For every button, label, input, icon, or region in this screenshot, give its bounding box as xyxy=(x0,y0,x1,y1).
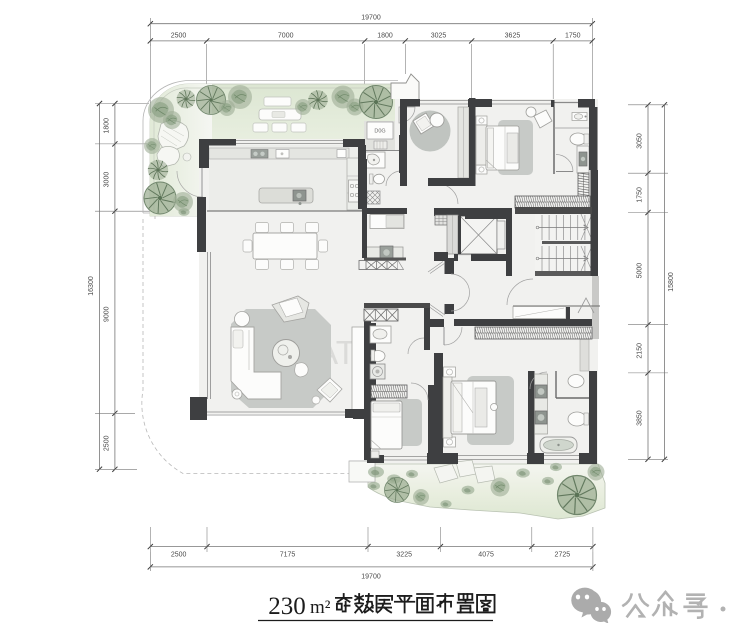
svg-text:4075: 4075 xyxy=(478,552,494,559)
svg-text:D0G: D0G xyxy=(374,129,385,135)
svg-text:19700: 19700 xyxy=(361,574,381,581)
svg-text:2500: 2500 xyxy=(104,435,111,451)
svg-text:230: 230 xyxy=(268,593,306,620)
svg-text:2150: 2150 xyxy=(637,343,644,359)
svg-text:1800: 1800 xyxy=(377,33,393,40)
svg-text:7000: 7000 xyxy=(278,33,294,40)
svg-text:1800: 1800 xyxy=(104,118,111,134)
svg-text:1750: 1750 xyxy=(637,187,644,203)
svg-text:19700: 19700 xyxy=(361,15,381,22)
svg-text:2500: 2500 xyxy=(171,33,187,40)
svg-text:7175: 7175 xyxy=(280,552,296,559)
svg-text:3850: 3850 xyxy=(637,410,644,426)
svg-text:2500: 2500 xyxy=(171,552,187,559)
svg-text:m²: m² xyxy=(310,597,331,618)
svg-text:15800: 15800 xyxy=(668,272,675,292)
svg-text:3625: 3625 xyxy=(505,33,521,40)
svg-text:3050: 3050 xyxy=(637,133,644,149)
svg-text:16300: 16300 xyxy=(88,276,95,296)
svg-text:2725: 2725 xyxy=(555,552,571,559)
svg-text:9000: 9000 xyxy=(104,306,111,322)
svg-text:1750: 1750 xyxy=(565,33,581,40)
svg-text:3025: 3025 xyxy=(431,33,447,40)
svg-text:5000: 5000 xyxy=(637,263,644,279)
svg-text:3225: 3225 xyxy=(396,552,412,559)
svg-text:3000: 3000 xyxy=(104,172,111,188)
